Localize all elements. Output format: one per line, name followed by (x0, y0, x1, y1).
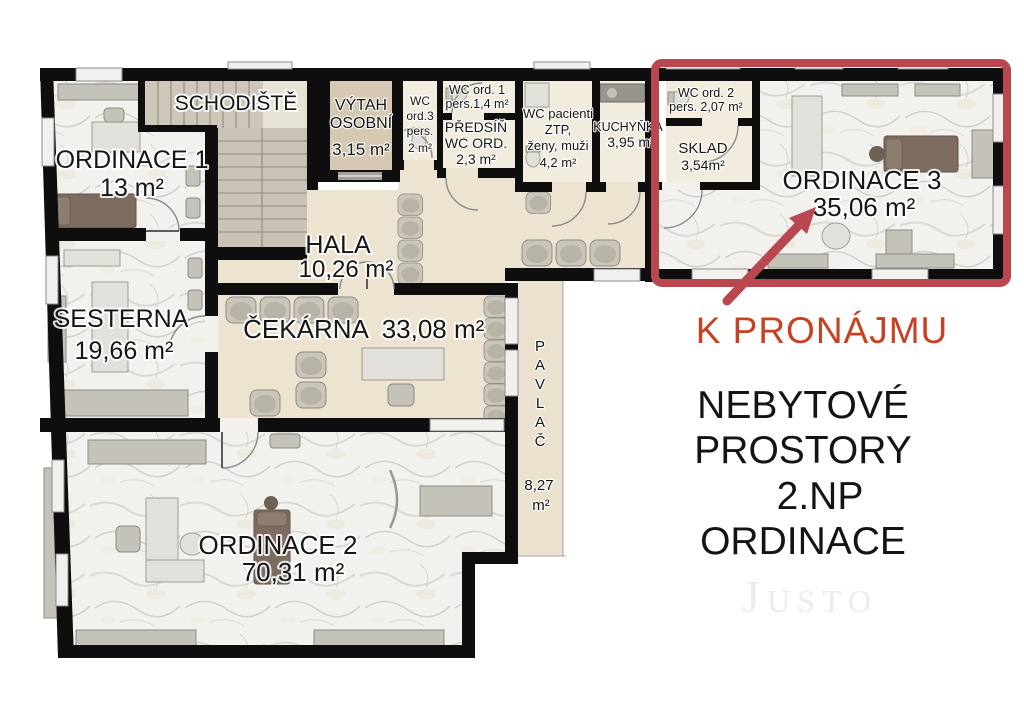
wall-wcpac-left (515, 68, 523, 192)
window (594, 269, 640, 281)
cabinet (876, 254, 954, 268)
wall-stair-bottom (205, 247, 307, 260)
annotations: Justo K PRONÁJMU NEBYTOVÉ PROSTORY 2.NP … (694, 310, 948, 622)
chair (398, 217, 423, 238)
label-wc-ord3-1: WC (410, 94, 430, 108)
area-ordinace3: 35,06 m² (813, 192, 916, 222)
cabinet (58, 84, 140, 100)
wall-ord1-bottom (46, 228, 218, 241)
cabinet (915, 84, 960, 96)
title-line-3: 2.NP (777, 475, 864, 518)
window (76, 68, 122, 81)
label-pavlac-p: P (535, 338, 545, 355)
chair (590, 240, 620, 266)
floor-plan-drawing: SCHODIŠTĚ ORDINACE 1 13 m² VÝTAH OSOBNÍ … (0, 0, 1024, 724)
label-sesterna: SESTERNA (54, 305, 189, 333)
desk (146, 560, 204, 582)
window (56, 554, 68, 606)
area-wc-ord3: 2 m² (408, 141, 432, 155)
label-predsin-1: PŘEDSÍŇ (445, 119, 507, 135)
chair (296, 382, 326, 408)
label-wc-ord3-2: ord.3 (406, 109, 434, 123)
door-opening (146, 228, 180, 241)
sink (270, 434, 300, 448)
cabinet (842, 84, 898, 96)
label-predsin-2: WC ORD. (445, 135, 507, 151)
wall-stair-right (307, 68, 318, 190)
door-opening (220, 418, 258, 432)
door-opening (702, 118, 738, 126)
window (52, 460, 64, 512)
label-wc-ord2-1: WC ord. 2 (678, 86, 734, 100)
label-vytah-1: VÝTAH (335, 95, 387, 114)
door-opening (205, 316, 218, 352)
for-rent-label: K PRONÁJMU (696, 310, 949, 351)
chair (398, 263, 423, 284)
label-wc-ord2-2: pers. 2,07 m² (669, 100, 743, 114)
sink (188, 290, 202, 310)
exam-lamp (869, 146, 885, 162)
door-opening (552, 182, 586, 192)
label-pavlac-a1: A (535, 357, 545, 374)
window (430, 419, 504, 431)
cabinet (64, 250, 120, 266)
label-wc-pacienti-1: WC pacienti (523, 106, 593, 121)
wall-vytah-left (318, 68, 330, 182)
cabinet (768, 254, 828, 268)
kitchen-counter (600, 84, 645, 102)
chair (556, 240, 586, 266)
window (46, 256, 58, 304)
label-vytah-2: OSOBNÍ (330, 113, 393, 132)
floor-plan-page: SCHODIŠTĚ ORDINACE 1 13 m² VÝTAH OSOBNÍ … (0, 0, 1024, 724)
sink (188, 258, 202, 278)
label-pavlac-a2: A (535, 414, 545, 431)
window (505, 350, 518, 396)
chair (398, 240, 423, 261)
sink (186, 198, 200, 218)
exam-bed-pillow (257, 512, 287, 526)
chair (522, 240, 552, 266)
title-line-1: NEBYTOVÉ (697, 384, 909, 427)
chair (526, 192, 551, 213)
area-sesterna: 19,66 m² (75, 337, 174, 365)
area-hala: 10,26 m² (299, 256, 394, 283)
door-opening (662, 182, 700, 190)
wall-ord1-stair (138, 68, 145, 125)
label-pavlac-v: V (535, 376, 545, 393)
label-ordinace3: ORDINACE 3 (783, 165, 942, 195)
label-ordinace1: ORDINACE 1 (56, 146, 209, 174)
label-cekarna: ČEKÁRNA (243, 314, 369, 344)
window (42, 118, 54, 166)
office-chair (388, 384, 414, 406)
chair (296, 352, 326, 378)
area-ordinace1: 13 m² (100, 174, 164, 202)
stool (822, 223, 850, 249)
corridor-floor-patch1 (398, 168, 443, 192)
label-pavlac-l: L (536, 395, 544, 412)
area-predsin: 2,3 m² (456, 151, 496, 167)
label-hala: HALA (305, 231, 371, 259)
door-opening (404, 160, 434, 170)
cabinet (88, 440, 206, 464)
title-line-2: PROSTORY (694, 429, 911, 472)
wall-ord1-flight (138, 125, 217, 132)
label-wc-ord1-1: WC ord. 1 (449, 83, 505, 97)
label-schodiste: SCHODIŠTĚ (175, 92, 298, 115)
kitchen-sink (607, 88, 617, 98)
reception-desk (362, 348, 444, 380)
shower (525, 83, 549, 107)
label-wc-ord3-3: pers. (407, 124, 434, 138)
cabinet (420, 486, 492, 516)
chair (398, 194, 423, 215)
area-pavlac-2: m² (532, 497, 550, 514)
label-wc-ord1-2: pers.1,4 m² (445, 97, 508, 111)
wall-bottom (58, 645, 475, 658)
area-sklad: 3,54m² (681, 157, 725, 173)
wall-ord2-right (462, 552, 475, 658)
wall-pavlac-left (505, 432, 518, 558)
area-cekarna: 33,08 m² (382, 314, 485, 344)
corridor-floor-patch2 (437, 176, 517, 192)
area-kuchynka: 3,95 m² (607, 134, 655, 150)
office-chair (116, 526, 140, 552)
door-opening (606, 182, 638, 192)
watermark: Justo (742, 571, 878, 622)
label-pavlac-c: Č (535, 433, 546, 450)
title-line-4: ORDINACE (700, 520, 906, 563)
window (505, 298, 518, 344)
wall-sklad-right (752, 68, 760, 190)
chair (250, 390, 280, 416)
window-mark (534, 62, 590, 69)
label-wc-pacienti-2: ZTP, (545, 122, 572, 137)
door-opening (446, 168, 478, 178)
area-ordinace2: 70,31 m² (242, 557, 345, 587)
cabinet (792, 96, 822, 176)
label-wc-pacienti-3: ženy, muži (527, 138, 588, 153)
cabinet (62, 390, 188, 416)
exam-lamp (264, 496, 278, 510)
area-pavlac-1: 8,27 (524, 477, 553, 494)
label-ordinace2: ORDINACE 2 (199, 530, 358, 560)
office-chair (104, 108, 124, 122)
window-mark (228, 62, 292, 69)
cabinet (972, 130, 994, 178)
label-sklad: SKLAD (678, 140, 727, 157)
wall-vytah-right (392, 68, 403, 170)
area-wc-pacienti: 4,2 m² (540, 155, 578, 170)
area-vytah: 3,15 m² (332, 140, 390, 159)
wall-wc13-left (437, 68, 443, 178)
